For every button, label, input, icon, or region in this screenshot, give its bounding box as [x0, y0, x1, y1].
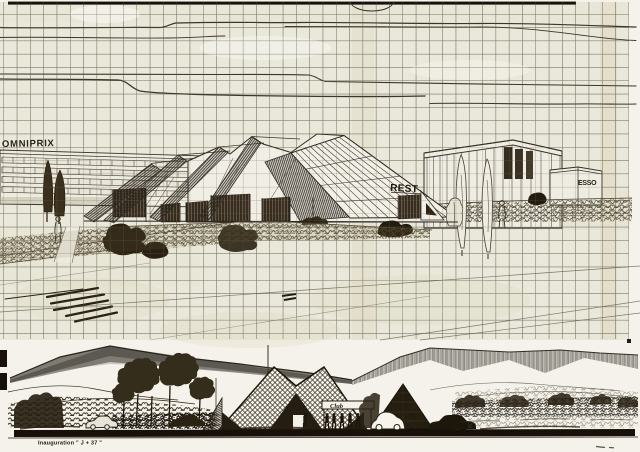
svg-text:Club: Club	[330, 403, 344, 410]
svg-text:Inauguration " J + 37 ": Inauguration " J + 37 "	[38, 441, 102, 447]
